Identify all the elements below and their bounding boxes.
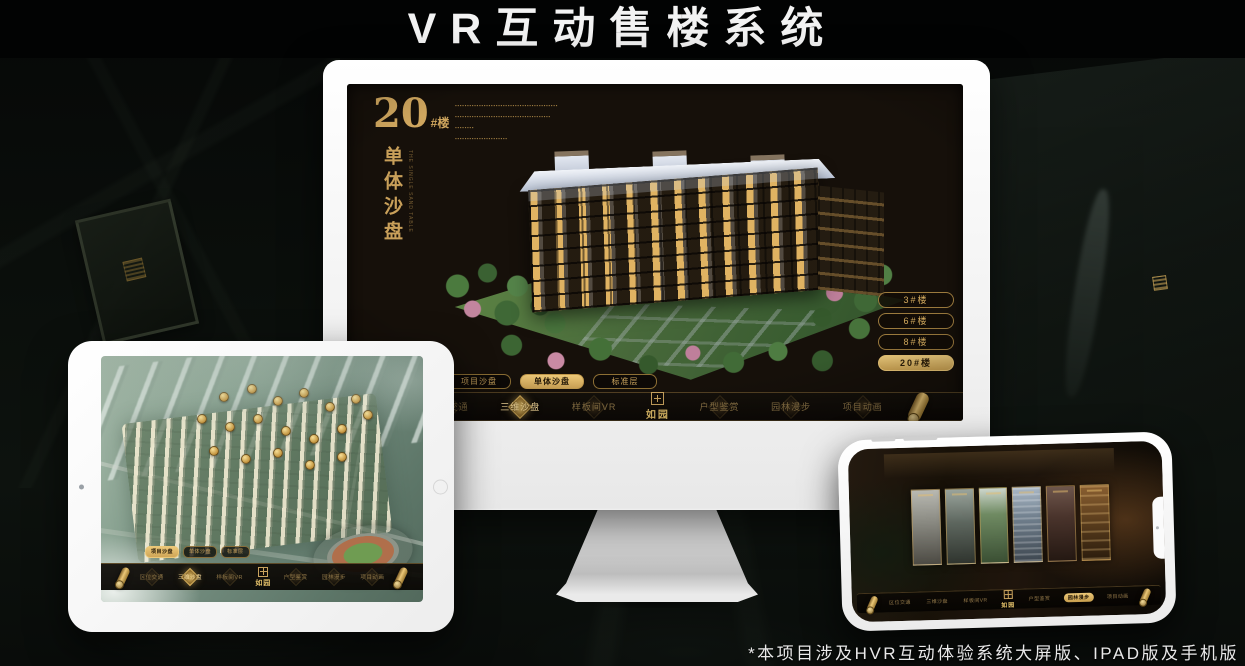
nav-item-showroom-vr[interactable]: 样板间VR — [214, 573, 245, 581]
camera-dot-icon — [1156, 526, 1159, 529]
nav-item-label: 项目动画 — [843, 402, 883, 412]
phone-notch — [1152, 496, 1166, 558]
nav-item-label: 户型鉴赏 — [700, 402, 740, 412]
nav-item-label: 园林漫步 — [1068, 595, 1090, 602]
brand-logo[interactable]: 如园 — [1001, 590, 1016, 609]
nav-item-label: 样板间VR — [216, 575, 243, 581]
building-badge[interactable] — [241, 454, 251, 464]
volume-button — [871, 437, 895, 442]
gallery-panel[interactable] — [911, 489, 942, 566]
building-badge[interactable] — [309, 434, 319, 444]
building-badge[interactable] — [299, 388, 309, 398]
gallery-panel[interactable] — [1046, 485, 1077, 562]
nav-item-label: 园林漫步 — [771, 402, 811, 412]
heading-subtitle: 单体沙盘 — [379, 146, 406, 246]
building-badge[interactable] — [351, 394, 361, 404]
building-model-scene — [427, 139, 912, 401]
nav-item-3d-sandtable[interactable]: 三维沙盘 — [498, 400, 542, 413]
seal-icon — [651, 392, 664, 405]
nav-item-label: 项目动画 — [360, 575, 384, 581]
nav-item-label: 园林漫步 — [322, 575, 346, 581]
nav-item-label: 项目动画 — [1107, 594, 1129, 601]
building-badge[interactable] — [225, 422, 235, 432]
tablet-device: 项目沙盘 单体沙盘 标准层 区位交通 三维沙盘 样板间VR 如园 户型鉴赏 园林… — [68, 341, 454, 632]
scroll-icon[interactable] — [907, 390, 931, 421]
building-badge[interactable] — [337, 452, 347, 462]
brand-logo[interactable]: 如园 — [255, 567, 271, 588]
nav-item-label: 三维沙盘 — [926, 599, 948, 606]
nav-item-garden-walk[interactable]: 园林漫步 — [769, 400, 813, 413]
building-button-20[interactable]: 20#楼 — [878, 355, 954, 371]
building-button-8[interactable]: 8#楼 — [878, 334, 954, 350]
phone-device: 区位交通 三维沙盘 样板间VR 如园 户型鉴赏 园林漫步 项目动画 — [837, 431, 1176, 631]
tablet-subtabs: 项目沙盘 单体沙盘 标准层 — [145, 546, 250, 558]
scroll-icon[interactable] — [866, 595, 879, 612]
page-title: VR互动售楼系统 — [0, 2, 1245, 58]
heading-subtitle-caption: THE SINGLE SAND TABLE — [407, 150, 413, 233]
subtab-project-sandtable[interactable]: 项目沙盘 — [447, 374, 511, 389]
building-badge[interactable] — [197, 414, 207, 424]
nav-item-label: 样板间VR — [963, 598, 987, 605]
nav-item-label: 区位交通 — [140, 575, 164, 581]
home-button — [433, 479, 448, 494]
building-badge[interactable] — [253, 414, 263, 424]
nav-item-project-film[interactable]: 项目动画 — [841, 400, 885, 413]
camera-dot-icon — [79, 484, 84, 489]
tablet-navbar: 区位交通 三维沙盘 样板间VR 如园 户型鉴赏 园林漫步 项目动画 — [101, 563, 423, 590]
subtab-single-sandtable[interactable]: 单体沙盘 — [183, 546, 217, 558]
model-building-side — [818, 186, 884, 297]
brand-logo[interactable]: 如园 — [646, 392, 670, 421]
interior-ceiling-beam — [884, 448, 1115, 478]
intro-line: ▪▪▪▪▪▪▪▪ — [455, 122, 715, 133]
building-badge[interactable] — [209, 446, 219, 456]
nav-item-label: 户型鉴赏 — [1029, 596, 1051, 603]
subtab-standard-floor[interactable]: 标准层 — [593, 374, 657, 389]
nav-item-unit-gallery[interactable]: 户型鉴赏 — [1027, 595, 1053, 603]
phone-screen: 区位交通 三维沙盘 样板间VR 如园 户型鉴赏 园林漫步 项目动画 — [848, 441, 1167, 623]
nav-item-label: 三维沙盘 — [178, 575, 202, 581]
intro-line: ▪▪▪▪▪▪▪▪▪▪▪▪▪▪▪▪▪▪▪▪▪▪▪▪▪▪▪▪▪▪▪▪▪▪▪▪▪▪▪▪ — [455, 111, 715, 122]
nav-item-showroom-vr[interactable]: 样板间VR — [570, 400, 619, 413]
building-badge[interactable] — [325, 402, 335, 412]
intro-paragraph: ▪▪▪▪▪▪▪▪▪▪▪▪▪▪▪▪▪▪▪▪▪▪▪▪▪▪▪▪▪▪▪▪▪▪▪▪▪▪▪▪… — [455, 100, 715, 144]
building-unit: #楼 — [431, 116, 450, 130]
tablet-screen: 项目沙盘 单体沙盘 标准层 区位交通 三维沙盘 样板间VR 如园 户型鉴赏 园林… — [101, 356, 423, 602]
building-badge[interactable] — [281, 426, 291, 436]
building-badge[interactable] — [219, 392, 229, 402]
building-badge[interactable] — [273, 448, 283, 458]
phone-navbar: 区位交通 三维沙盘 样板间VR 如园 户型鉴赏 园林漫步 项目动画 — [857, 585, 1161, 613]
poster-canvas: VR互动售楼系统 20#楼 单体沙盘 THE SINGLE SAND TABLE… — [0, 0, 1245, 666]
intro-line: ▪▪▪▪▪▪▪▪▪▪▪▪▪▪▪▪▪▪▪▪▪▪▪▪▪▪▪▪▪▪▪▪▪▪▪▪▪▪▪▪… — [455, 100, 715, 111]
panorama-gallery — [911, 484, 1111, 565]
nav-item-label: 户型鉴赏 — [284, 575, 308, 581]
nav-item-showroom-vr[interactable]: 样板间VR — [961, 597, 989, 605]
seal-icon — [258, 567, 268, 577]
nav-item-project-film[interactable]: 项目动画 — [1105, 593, 1131, 601]
gallery-panel[interactable] — [978, 487, 1009, 564]
subtab-standard-floor[interactable]: 标准层 — [221, 546, 250, 558]
building-number: 20 — [373, 90, 429, 137]
nav-item-garden-walk[interactable]: 园林漫步 — [320, 573, 348, 581]
background-gold-seal — [1152, 275, 1168, 291]
nav-item-project-film[interactable]: 项目动画 — [358, 573, 386, 581]
volume-button — [903, 436, 937, 441]
nav-item-location-traffic[interactable]: 区位交通 — [138, 573, 166, 581]
nav-item-unit-gallery[interactable]: 户型鉴赏 — [698, 400, 742, 413]
nav-item-label: 样板间VR — [572, 402, 617, 412]
nav-item-garden-walk[interactable]: 园林漫步 — [1064, 593, 1094, 603]
scroll-icon[interactable] — [1139, 587, 1152, 604]
subtab-project-sandtable[interactable]: 项目沙盘 — [145, 546, 179, 558]
brand-name: 如园 — [255, 578, 271, 588]
nav-item-3d-sandtable[interactable]: 三维沙盘 — [924, 598, 950, 606]
intro-line: ▪▪▪▪▪▪▪▪▪▪▪▪▪▪▪▪▪▪▪▪▪▪ — [455, 133, 715, 144]
nav-item-label: 三维沙盘 — [500, 402, 540, 412]
building-selector: 3#楼 6#楼 8#楼 20#楼 — [878, 292, 954, 371]
footnote: *本项目涉及HVR互动体验系统大屏版、IPAD版及手机版 — [748, 639, 1239, 664]
building-badge[interactable] — [273, 396, 283, 406]
building-button-3[interactable]: 3#楼 — [878, 292, 954, 308]
seal-icon — [1003, 590, 1012, 599]
nav-item-location-traffic[interactable]: 区位交通 — [887, 599, 913, 607]
nav-item-unit-gallery[interactable]: 户型鉴赏 — [282, 573, 310, 581]
building-badge[interactable] — [337, 424, 347, 434]
building-badge[interactable] — [363, 410, 373, 420]
building-badge[interactable] — [247, 384, 257, 394]
nav-item-3d-sandtable[interactable]: 三维沙盘 — [176, 573, 204, 581]
desktop-subtabs: 项目沙盘 单体沙盘 标准层 — [447, 374, 657, 389]
gallery-panel[interactable] — [945, 488, 976, 565]
building-heading: 20#楼 — [373, 94, 449, 134]
scroll-icon[interactable] — [115, 566, 131, 588]
model-building-front — [528, 168, 822, 313]
gallery-panel[interactable] — [1012, 486, 1043, 563]
subtab-single-sandtable[interactable]: 单体沙盘 — [520, 374, 584, 389]
building-badge[interactable] — [305, 460, 315, 470]
brand-name: 如园 — [1001, 600, 1015, 609]
nav-item-label: 区位交通 — [889, 600, 911, 607]
gallery-panel[interactable] — [1080, 484, 1111, 561]
scroll-icon[interactable] — [393, 566, 409, 588]
brand-name: 如园 — [646, 406, 670, 421]
building-button-6[interactable]: 6#楼 — [878, 313, 954, 329]
